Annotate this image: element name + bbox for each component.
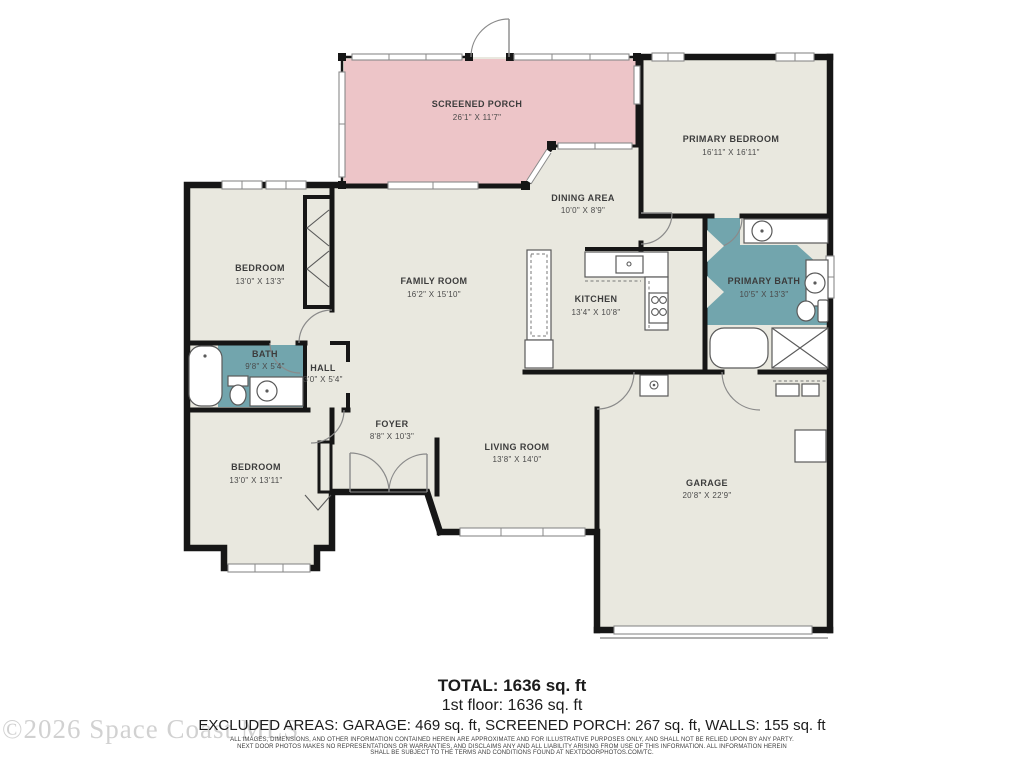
dims-bedroom-bottom: 13'0" X 13'11" [229, 476, 282, 485]
label-living-room: LIVING ROOM [485, 442, 550, 452]
first-floor-area-text: 1st floor: 1636 sq. ft [0, 697, 1024, 715]
dims-primary-bedroom: 16'11" X 16'11" [702, 148, 759, 157]
dims-foyer: 8'8" X 10'3" [370, 432, 414, 441]
label-bedroom-bottom: BEDROOM [231, 462, 281, 472]
label-hall: HALL [310, 363, 336, 373]
dims-dining-area: 10'0" X 8'9" [561, 206, 605, 215]
disclaimer-line-1: ALL IMAGES, DIMENSIONS, AND OTHER INFORM… [0, 737, 1024, 744]
label-bedroom-top: BEDROOM [235, 263, 285, 273]
dims-hall: 3'0" X 5'4" [303, 375, 343, 384]
label-garage: GARAGE [686, 478, 728, 488]
excluded-areas-text: EXCLUDED AREAS: GARAGE: 469 sq. ft, SCRE… [0, 717, 1024, 734]
dims-living-room: 13'8" X 14'0" [492, 455, 541, 464]
disclaimer-line-2: NEXT DOOR PHOTOS MAKES NO REPRESENTATION… [0, 744, 1024, 751]
label-primary-bedroom: PRIMARY BEDROOM [683, 134, 780, 144]
label-dining-area: DINING AREA [551, 193, 615, 203]
dims-primary-bath: 10'5" X 13'3" [739, 290, 788, 299]
total-area-text: TOTAL: 1636 sq. ft [0, 676, 1024, 696]
label-primary-bath: PRIMARY BATH [728, 276, 801, 286]
label-kitchen: KITCHEN [575, 294, 618, 304]
dims-screened-porch: 26'1" X 11'7" [453, 113, 502, 122]
label-family-room: FAMILY ROOM [401, 276, 468, 286]
label-foyer: FOYER [375, 419, 408, 429]
dims-garage: 20'8" X 22'9" [682, 491, 731, 500]
label-screened-porch: SCREENED PORCH [432, 99, 523, 109]
floor-plan-page: SCREENED PORCH 26'1" X 11'7" PRIMARY BED… [0, 0, 1024, 768]
dims-kitchen: 13'4" X 10'8" [571, 308, 620, 317]
dims-bedroom-top: 13'0" X 13'3" [235, 277, 284, 286]
dims-bath: 9'8" X 5'4" [245, 362, 285, 371]
label-bath: BATH [252, 349, 278, 359]
floor-plan-svg: SCREENED PORCH 26'1" X 11'7" PRIMARY BED… [0, 0, 1024, 768]
disclaimer-line-3: SHALL BE SUBJECT TO THE TERMS AND CONDIT… [0, 750, 1024, 757]
dims-family-room: 16'2" X 15'10" [407, 290, 461, 299]
disclaimer: ALL IMAGES, DIMENSIONS, AND OTHER INFORM… [0, 737, 1024, 757]
